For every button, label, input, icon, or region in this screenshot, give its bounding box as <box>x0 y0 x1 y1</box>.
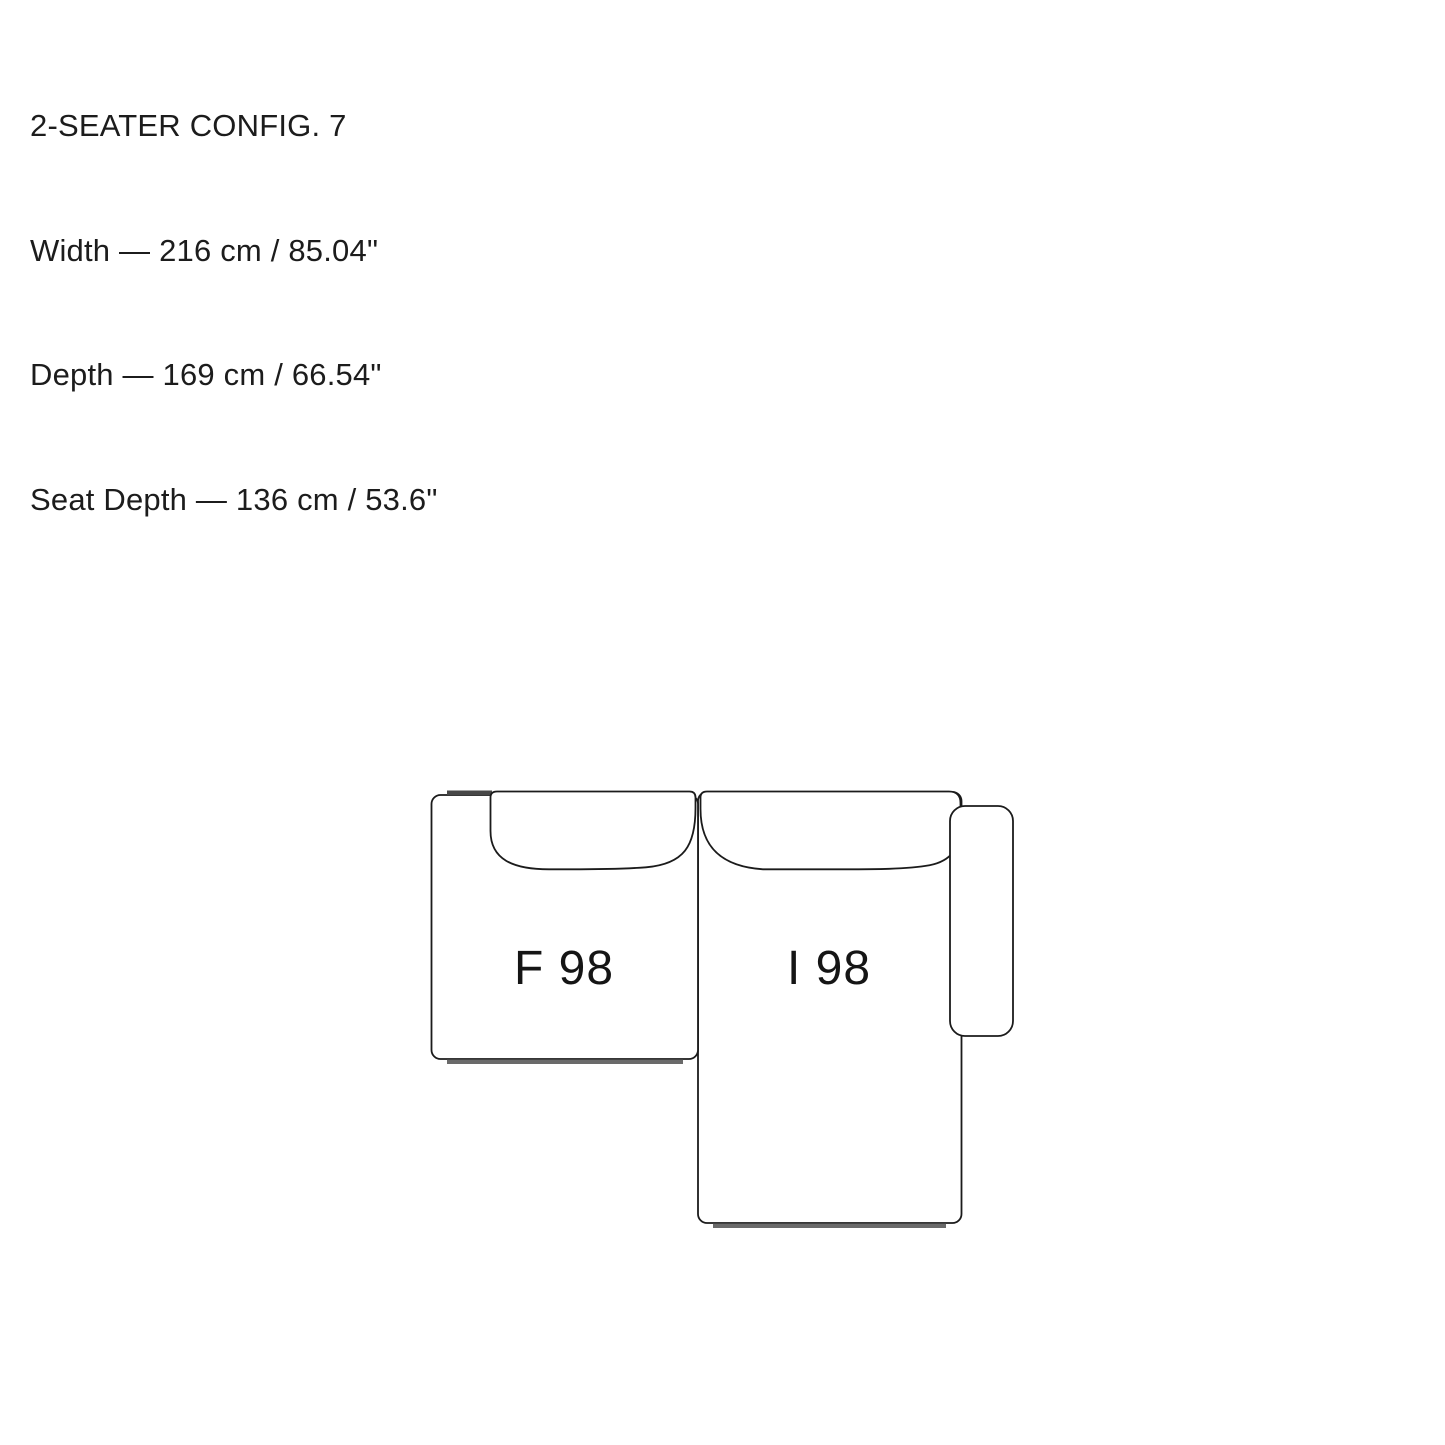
page: 2-SEATER CONFIG. 7 Width — 216 cm / 85.0… <box>0 0 1445 1445</box>
sofa-configuration-diagram: F 98 I 98 <box>0 0 1445 1445</box>
connector-strip-top-left <box>447 791 492 796</box>
plinth-strip-f98 <box>447 1060 683 1065</box>
armrest-right <box>950 806 1013 1036</box>
plinth-strip-i98 <box>713 1224 946 1229</box>
module-label-i98: I 98 <box>787 942 871 995</box>
backrest-cushion-f98 <box>491 792 696 870</box>
module-label-f98: F 98 <box>514 942 614 995</box>
backrest-cushion-i98 <box>701 792 961 870</box>
